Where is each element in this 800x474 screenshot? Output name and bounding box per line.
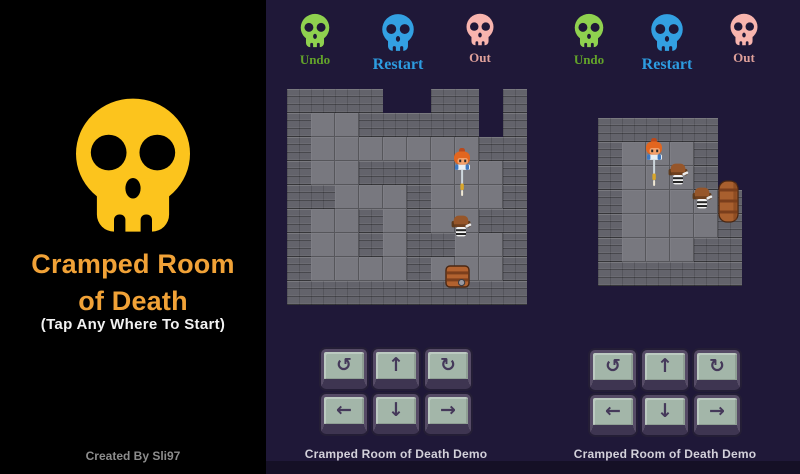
demo1-action-buttons: Undo Restart Out: [296, 12, 498, 74]
wall-tile: [503, 281, 527, 305]
demo2-action-buttons: Undo Restart Out: [570, 12, 762, 74]
wall-tile: [311, 185, 335, 209]
wall-tile: [359, 209, 383, 233]
restart-skull-icon: [646, 12, 688, 54]
floor-tile: [335, 257, 359, 281]
wall-tile: [503, 113, 527, 137]
floor-tile: [383, 137, 407, 161]
demo2-caption: Cramped Room of Death Demo: [555, 447, 775, 461]
wall-tile: [311, 281, 335, 305]
wall-tile: [359, 161, 383, 185]
wall-tile: [335, 89, 359, 113]
barrel-sprite: [717, 180, 740, 228]
wall-tile: [431, 89, 455, 113]
undo-button[interactable]: Undo: [570, 12, 608, 74]
demo1-caption: Cramped Room of Death Demo: [286, 447, 506, 461]
chest-sprite: [445, 265, 470, 293]
wall-tile: [694, 238, 718, 262]
wall-tile: [670, 118, 694, 142]
wall-tile: [383, 113, 407, 137]
floor-tile: [622, 238, 646, 262]
out-skull-icon: [462, 12, 498, 48]
wall-tile: [287, 281, 311, 305]
wall-tile: [287, 113, 311, 137]
restart-label: Restart: [373, 56, 424, 74]
floor-tile: [311, 209, 335, 233]
wall-tile: [311, 89, 335, 113]
wall-tile: [598, 238, 622, 262]
wall-tile: [503, 257, 527, 281]
wall-tile: [694, 262, 718, 286]
out-button[interactable]: Out: [726, 12, 762, 74]
wall-tile: [455, 113, 479, 137]
title-screen[interactable]: Cramped Room of Death (Tap Any Where To …: [0, 0, 266, 474]
floor-tile: [383, 185, 407, 209]
wall-tile: [598, 214, 622, 238]
floor-tile: [359, 137, 383, 161]
turn-left-key[interactable]: ↺: [590, 350, 636, 390]
wall-tile: [455, 89, 479, 113]
turn-left-key[interactable]: ↺: [321, 349, 367, 389]
floor-tile: [335, 209, 359, 233]
up-key-arrow-icon: ↑: [388, 356, 404, 375]
wall-tile: [287, 161, 311, 185]
wall-tile: [287, 89, 311, 113]
enemy-sprite: [666, 162, 690, 193]
floor-tile: [335, 137, 359, 161]
turn-right-key-arrow-icon: ↻: [709, 357, 725, 376]
enemy-sprite: [690, 186, 714, 217]
undo-skull-icon: [296, 12, 334, 50]
undo-label: Undo: [300, 52, 330, 68]
wall-tile: [670, 262, 694, 286]
undo-label: Undo: [574, 52, 604, 68]
wall-tile: [359, 113, 383, 137]
floor-tile: [479, 257, 503, 281]
floor-tile: [359, 257, 383, 281]
down-key[interactable]: ↓: [642, 395, 688, 435]
wall-tile: [287, 233, 311, 257]
right-key-arrow-icon: →: [709, 402, 725, 421]
wall-tile: [407, 161, 431, 185]
skull-logo-icon: [57, 88, 209, 246]
floor-tile: [622, 142, 646, 166]
floor-tile: [383, 233, 407, 257]
wall-tile: [407, 113, 431, 137]
wall-tile: [383, 281, 407, 305]
floor-tile: [646, 214, 670, 238]
floor-tile: [646, 238, 670, 262]
app-window: Cramped Room of Death (Tap Any Where To …: [0, 0, 800, 474]
floor-tile: [335, 185, 359, 209]
floor-tile: [311, 233, 335, 257]
wall-tile: [598, 166, 622, 190]
floor-tile: [311, 257, 335, 281]
wall-tile: [479, 281, 503, 305]
floor-tile: [335, 113, 359, 137]
up-key[interactable]: ↑: [373, 349, 419, 389]
wall-tile: [503, 233, 527, 257]
wall-tile: [287, 137, 311, 161]
start-hint: (Tap Any Where To Start): [0, 316, 266, 333]
wall-tile: [503, 89, 527, 113]
gallery-bottom-strip: [266, 461, 800, 474]
wall-tile: [359, 89, 383, 113]
wall-tile: [407, 209, 431, 233]
floor-tile: [335, 233, 359, 257]
left-key-arrow-icon: ←: [605, 402, 621, 421]
wall-tile: [359, 233, 383, 257]
up-key[interactable]: ↑: [642, 350, 688, 390]
floor-tile: [622, 166, 646, 190]
right-key[interactable]: →: [425, 394, 471, 434]
floor-tile: [646, 190, 670, 214]
wall-tile: [383, 161, 407, 185]
wall-tile: [598, 118, 622, 142]
undo-skull-icon: [570, 12, 608, 50]
floor-tile: [383, 257, 407, 281]
turn-left-key-arrow-icon: ↺: [605, 357, 621, 376]
game-title-line2: of Death: [0, 283, 266, 320]
floor-tile: [335, 161, 359, 185]
restart-button[interactable]: Restart: [642, 12, 693, 74]
restart-skull-icon: [377, 12, 419, 54]
floor-tile: [407, 137, 431, 161]
turn-right-key[interactable]: ↻: [694, 350, 740, 390]
out-skull-icon: [726, 12, 762, 48]
out-label: Out: [733, 50, 755, 66]
floor-tile: [383, 209, 407, 233]
player-sprite: [643, 138, 665, 193]
wall-tile: [718, 262, 742, 286]
wall-tile: [598, 142, 622, 166]
wall-tile: [407, 233, 431, 257]
demo2-keypad: ↺↑↻←↓→: [590, 350, 740, 435]
right-key[interactable]: →: [694, 395, 740, 435]
wall-tile: [287, 257, 311, 281]
enemy-sprite: [449, 214, 473, 245]
floor-tile: [359, 185, 383, 209]
game-title: Cramped Room of Death: [0, 246, 266, 320]
wall-tile: [622, 262, 646, 286]
undo-button[interactable]: Undo: [296, 12, 334, 74]
player-sprite: [451, 148, 473, 203]
right-key-arrow-icon: →: [440, 401, 456, 420]
turn-left-key-arrow-icon: ↺: [336, 356, 352, 375]
wall-tile: [431, 113, 455, 137]
wall-tile: [503, 161, 527, 185]
out-button[interactable]: Out: [462, 12, 498, 74]
down-key[interactable]: ↓: [373, 394, 419, 434]
down-key-arrow-icon: ↓: [388, 401, 404, 420]
floor-tile: [311, 113, 335, 137]
wall-tile: [694, 118, 718, 142]
wall-tile: [479, 209, 503, 233]
credit-text: Created By Sli97: [0, 449, 266, 463]
demo2-game-map[interactable]: [598, 118, 742, 286]
wall-tile: [407, 185, 431, 209]
floor-tile: [670, 214, 694, 238]
turn-right-key-arrow-icon: ↻: [440, 356, 456, 375]
floor-tile: [479, 161, 503, 185]
wall-tile: [503, 137, 527, 161]
wall-tile: [646, 262, 670, 286]
left-key-arrow-icon: ←: [336, 401, 352, 420]
demo1-keypad: ↺↑↻←↓→: [321, 349, 471, 434]
restart-button[interactable]: Restart: [373, 12, 424, 74]
wall-tile: [718, 238, 742, 262]
wall-tile: [479, 137, 503, 161]
wall-tile: [503, 209, 527, 233]
wall-tile: [503, 185, 527, 209]
demo-gallery: Undo Restart Out: [266, 0, 800, 474]
floor-tile: [311, 161, 335, 185]
wall-tile: [335, 281, 359, 305]
wall-tile: [287, 209, 311, 233]
wall-tile: [407, 281, 431, 305]
turn-right-key[interactable]: ↻: [425, 349, 471, 389]
wall-tile: [694, 142, 718, 166]
floor-tile: [479, 233, 503, 257]
restart-label: Restart: [642, 56, 693, 74]
left-key[interactable]: ←: [321, 394, 367, 434]
wall-tile: [598, 262, 622, 286]
out-label: Out: [469, 50, 491, 66]
floor-tile: [311, 137, 335, 161]
floor-tile: [694, 214, 718, 238]
game-title-line1: Cramped Room: [0, 246, 266, 283]
up-key-arrow-icon: ↑: [657, 357, 673, 376]
demo1-game-map[interactable]: [287, 89, 527, 305]
wall-tile: [622, 118, 646, 142]
wall-tile: [598, 190, 622, 214]
down-key-arrow-icon: ↓: [657, 402, 673, 421]
floor-tile: [622, 214, 646, 238]
wall-tile: [359, 281, 383, 305]
left-key[interactable]: ←: [590, 395, 636, 435]
floor-tile: [670, 238, 694, 262]
wall-tile: [407, 257, 431, 281]
wall-tile: [287, 185, 311, 209]
floor-tile: [622, 190, 646, 214]
floor-tile: [479, 185, 503, 209]
